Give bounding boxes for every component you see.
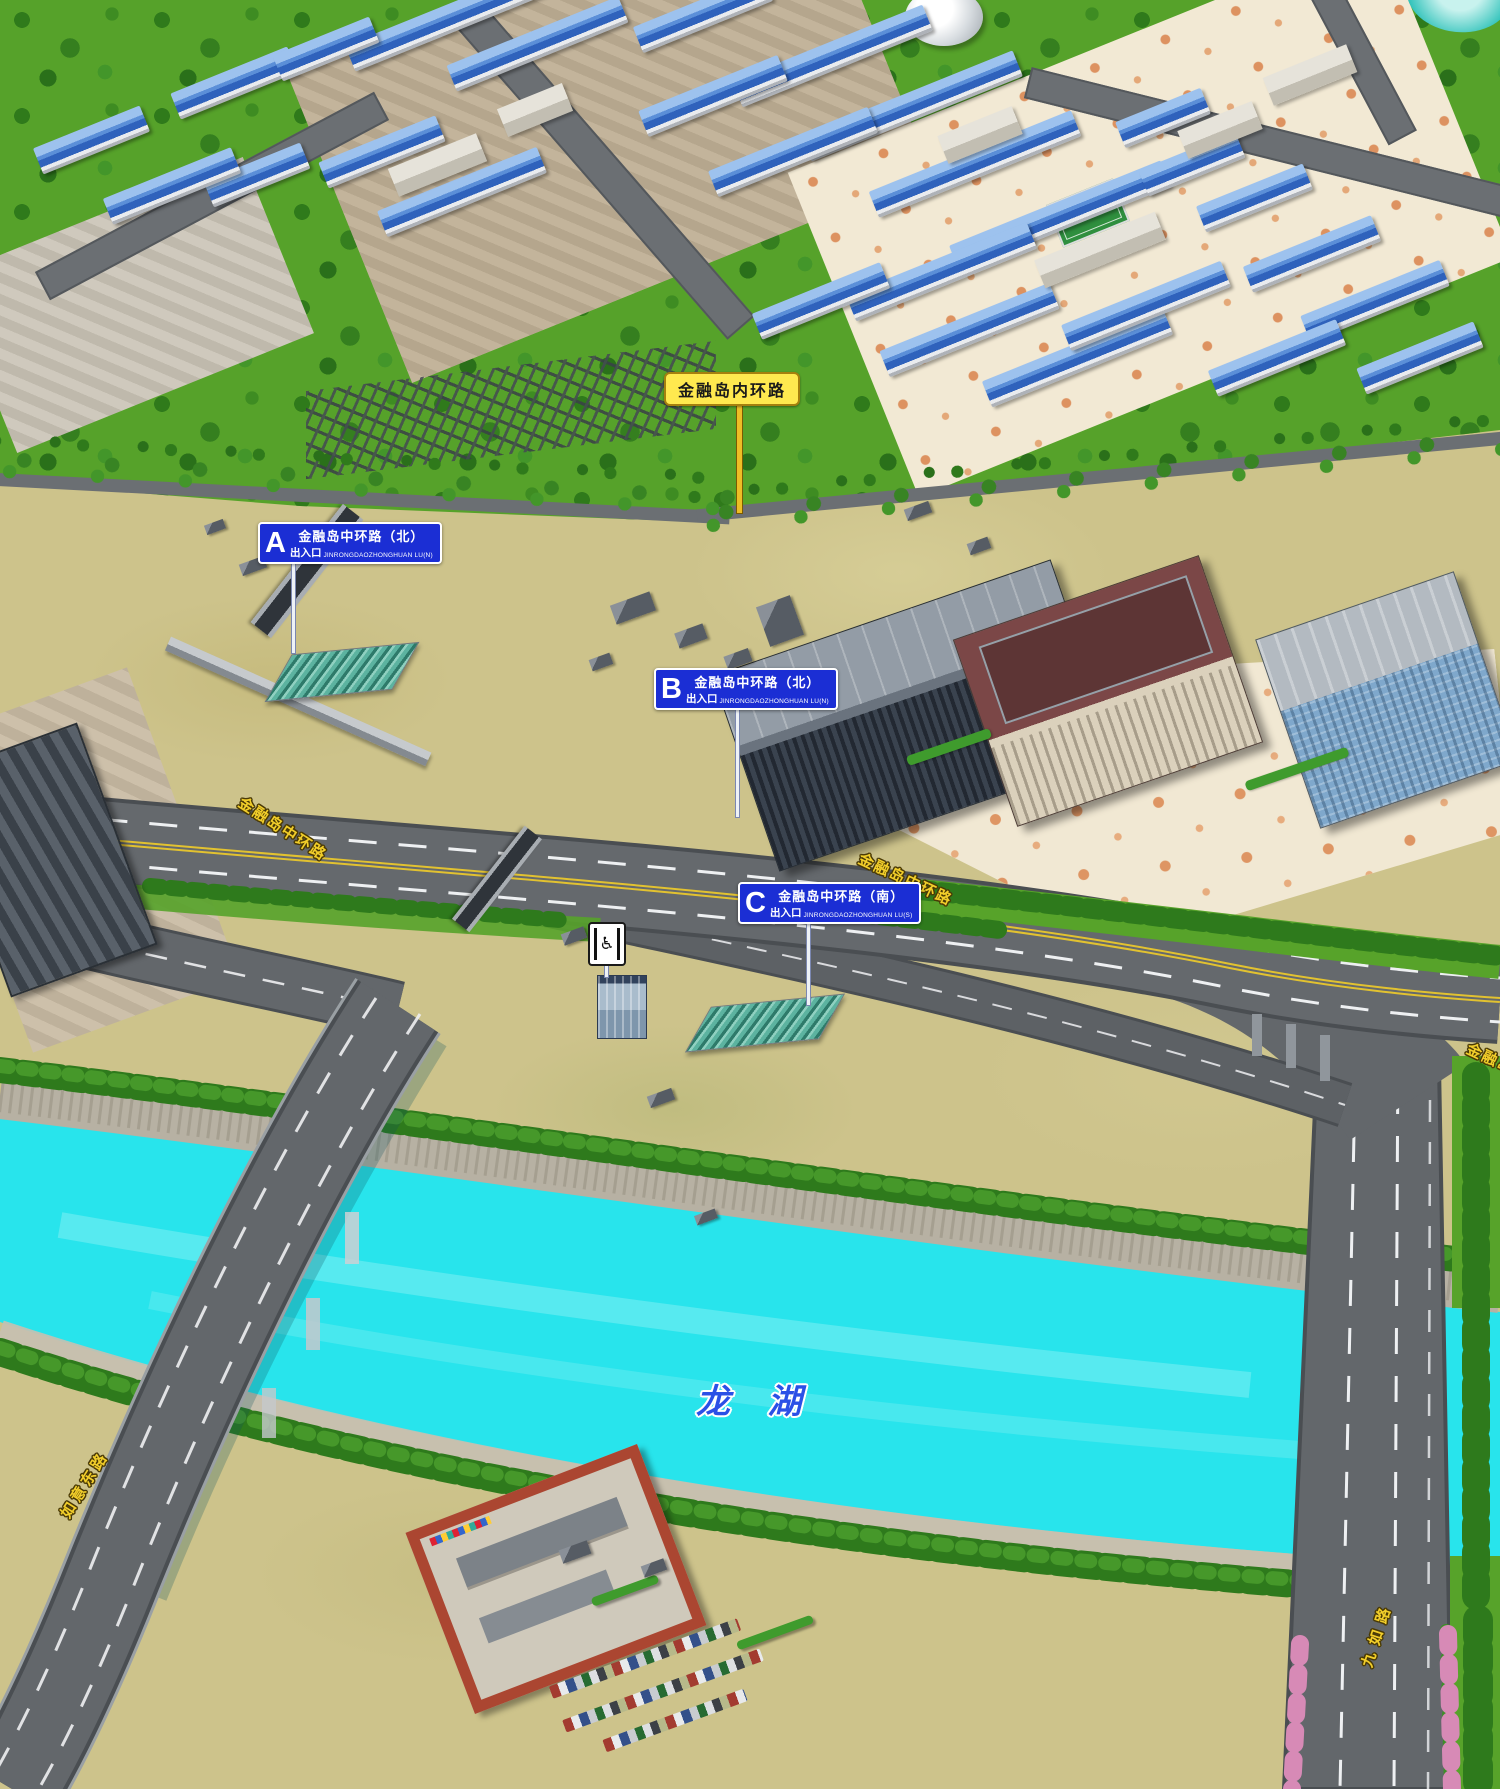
region-sign[interactable]: 金融岛内环路 <box>664 372 800 406</box>
lake-name-label: 龙 湖 <box>696 1374 815 1423</box>
entrance-a-pole <box>291 556 296 654</box>
entrance-pinyin: JINRONGDAOZHONGHUAN LU(N) <box>719 698 828 706</box>
entrance-b-pole <box>735 704 740 818</box>
entrance-suffix: 出入口 <box>290 545 322 560</box>
entrance-letter: B <box>661 675 682 704</box>
entrance-suffix: 出入口 <box>686 691 718 706</box>
entrance-pinyin: JINRONGDAOZHONGHUAN LU(N) <box>323 552 432 560</box>
entrance-c-pole <box>806 918 811 1006</box>
entrance-letter: A <box>265 529 286 558</box>
campus-3d-map: 金融岛内环路 A 金融岛中环路（北） 出入口 JINRONGDAOZHONGHU… <box>0 0 1500 1789</box>
entrance-sign-a[interactable]: A 金融岛中环路（北） 出入口 JINRONGDAOZHONGHUAN LU(N… <box>258 522 442 564</box>
entrance-pinyin: JINRONGDAOZHONGHUAN LU(S) <box>803 912 912 920</box>
accessible-elevator-kiosk <box>597 975 647 1039</box>
entrance-sign-b[interactable]: B 金融岛中环路（北） 出入口 JINRONGDAOZHONGHUAN LU(N… <box>654 668 838 710</box>
entrance-letter: C <box>745 889 766 918</box>
entrance-road-name: 金融岛中环路（北） <box>694 672 820 691</box>
courtyard-roof <box>479 1569 615 1643</box>
entrance-sign-c[interactable]: C 金融岛中环路（南） 出入口 JINRONGDAOZHONGHUAN LU(S… <box>738 882 921 924</box>
entrance-road-name: 金融岛中环路（北） <box>298 526 424 545</box>
region-sign-pole <box>736 400 743 514</box>
entrance-suffix: 出入口 <box>770 905 802 920</box>
accessible-elevator-sign: ♿ <box>588 922 626 966</box>
wheelchair-icon: ♿ <box>599 934 614 954</box>
entrance-road-name: 金融岛中环路（南） <box>778 886 904 905</box>
